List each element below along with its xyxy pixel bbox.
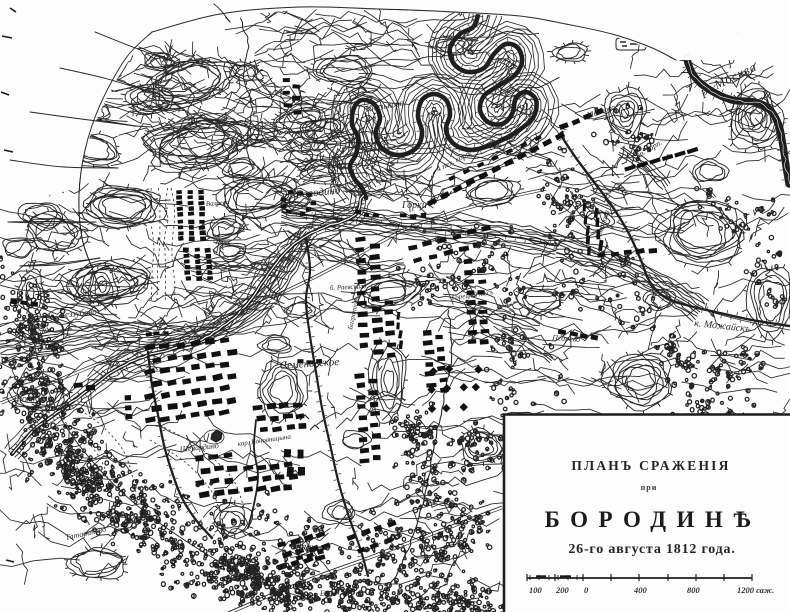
svg-text:200: 200: [555, 585, 570, 595]
svg-text:ПЛАНЪ СРАЖЕНІЯ: ПЛАНЪ СРАЖЕНІЯ: [571, 458, 730, 473]
svg-text:26-го августа 1812 года.: 26-го августа 1812 года.: [568, 542, 735, 557]
svg-text:Шевардино: Шевардино: [178, 441, 219, 454]
svg-text:Псарево: Псарево: [551, 333, 581, 344]
svg-text:Горки: Горки: [401, 200, 427, 211]
svg-text:Фомкино: Фомкино: [14, 393, 53, 405]
svg-text:Семеновское: Семеновское: [279, 356, 339, 372]
svg-text:Ельня: Ельня: [319, 588, 341, 598]
svg-text:100: 100: [529, 585, 543, 595]
svg-text:при: при: [641, 483, 658, 492]
svg-text:400: 400: [633, 585, 648, 595]
svg-text:800: 800: [687, 585, 701, 595]
svg-text:1200 саж.: 1200 саж.: [737, 585, 774, 595]
svg-text:кор. Коновницына: кор. Коновницына: [237, 433, 292, 448]
svg-text:Татариново: Татариново: [65, 525, 107, 542]
svg-text:р. Москва: р. Москва: [697, 59, 759, 99]
svg-text:Валуево: Валуево: [206, 198, 230, 208]
svg-text:Маслово: Маслово: [585, 102, 616, 120]
svg-text:БОРОДИНѢ: БОРОДИНѢ: [545, 507, 762, 532]
